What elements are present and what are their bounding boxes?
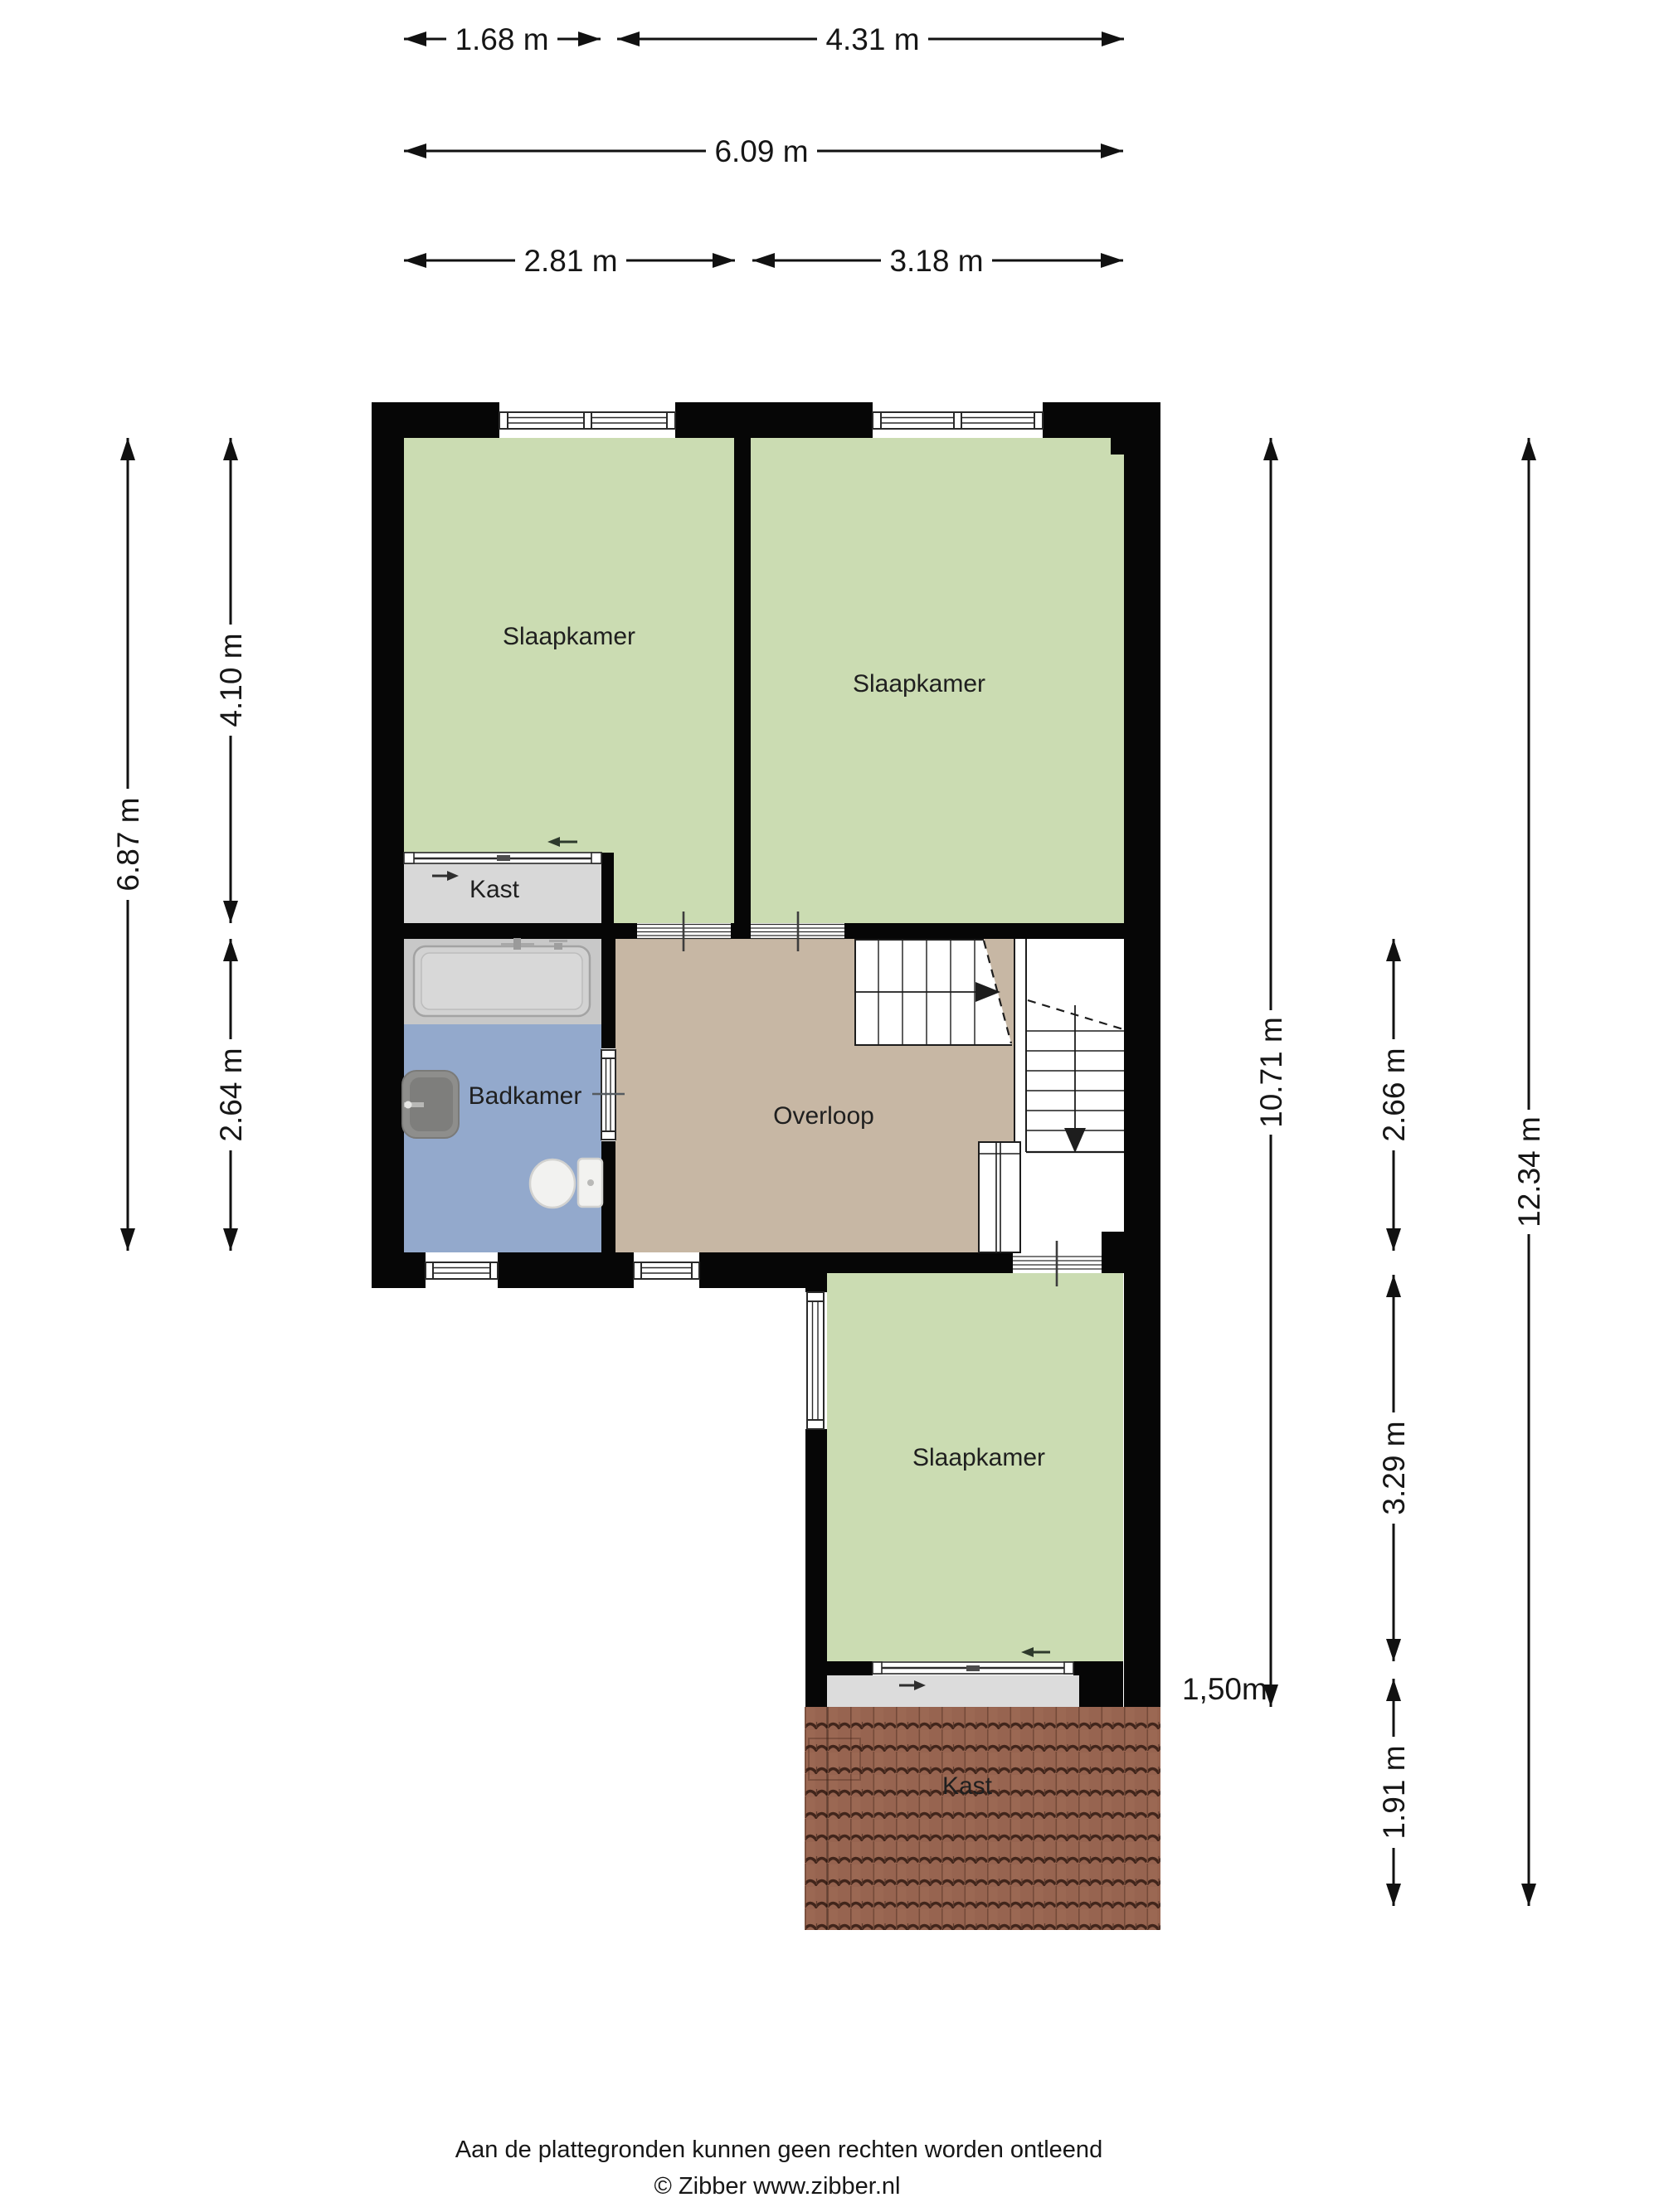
svg-text:6.09 m: 6.09 m — [714, 134, 808, 168]
svg-text:1.68 m: 1.68 m — [455, 22, 548, 56]
svg-text:10.71 m: 10.71 m — [1254, 1017, 1288, 1128]
svg-text:Aan de plattegronden kunnen ge: Aan de plattegronden kunnen geen rechten… — [455, 2137, 1102, 2163]
svg-text:Kast: Kast — [942, 1772, 993, 1800]
svg-text:4.31 m: 4.31 m — [825, 22, 919, 56]
svg-text:2.66 m: 2.66 m — [1377, 1048, 1411, 1141]
svg-text:Overloop: Overloop — [773, 1102, 874, 1130]
svg-text:1.91 m: 1.91 m — [1377, 1745, 1411, 1839]
svg-text:© Zibber www.zibber.nl: © Zibber www.zibber.nl — [654, 2173, 901, 2200]
svg-text:Badkamer: Badkamer — [469, 1082, 582, 1110]
svg-text:3.29 m: 3.29 m — [1377, 1421, 1411, 1514]
svg-text:4.10 m: 4.10 m — [214, 633, 248, 727]
svg-text:1,50m: 1,50m — [1182, 1672, 1267, 1706]
svg-text:Slaapkamer: Slaapkamer — [853, 670, 985, 698]
svg-text:6.87 m: 6.87 m — [111, 797, 145, 891]
svg-text:Slaapkamer: Slaapkamer — [912, 1444, 1045, 1471]
svg-text:3.18 m: 3.18 m — [889, 244, 983, 278]
svg-text:Slaapkamer: Slaapkamer — [503, 623, 635, 650]
svg-text:2.81 m: 2.81 m — [523, 244, 617, 278]
svg-text:12.34 m: 12.34 m — [1512, 1116, 1546, 1228]
svg-text:Kast: Kast — [469, 876, 520, 903]
svg-text:2.64 m: 2.64 m — [214, 1048, 248, 1141]
